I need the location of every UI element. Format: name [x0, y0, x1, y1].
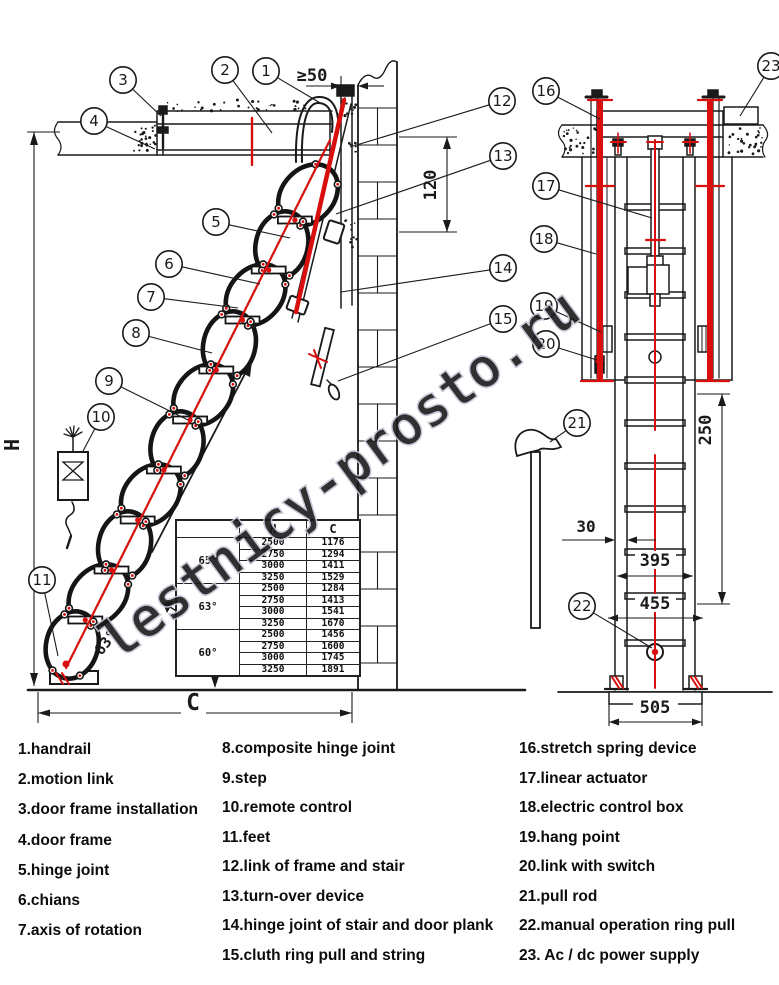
speckle-dot [737, 138, 739, 140]
bolt-dot [168, 413, 171, 416]
speckle-dot [210, 109, 213, 112]
speckle-dot [742, 142, 745, 145]
speckle-dot [167, 102, 169, 104]
callout-number: 2 [220, 61, 230, 79]
table-cell: 3250 [240, 664, 307, 676]
speckle-dot [353, 109, 355, 111]
speckle-dot [165, 106, 167, 108]
speckle-dot [303, 104, 305, 106]
table-cell: 1413 [307, 595, 361, 607]
speckle-dot [573, 127, 574, 128]
speckle-dot [354, 151, 356, 153]
bolt-dot [336, 183, 339, 186]
speckle-dot [343, 114, 346, 117]
speckle-dot [729, 136, 732, 139]
ladder-diagram-canvas: ≥50 120 H C ~63° 250 30 395 455 505 1234… [0, 0, 779, 738]
speckle-dot [138, 149, 140, 151]
speckle-dot [353, 106, 356, 109]
speckle-dot [257, 108, 260, 111]
table-row: 65°25001176 [176, 538, 360, 550]
table-row: 60°25001456 [176, 630, 360, 642]
speckle-dot [350, 238, 352, 240]
callout-8: 8 [123, 320, 212, 353]
speckle-dot [566, 132, 568, 134]
leader-line [341, 270, 490, 292]
legend-item: 23. Ac / dc power supply [519, 947, 735, 977]
speckle-dot [739, 127, 742, 130]
callout-number: 11 [32, 571, 51, 589]
callout-23: 23 [740, 53, 779, 116]
speckle-dot [755, 143, 758, 146]
legend-item: 1.handrail [18, 741, 198, 771]
callout-number: 10 [91, 408, 110, 426]
speckle-dot [760, 142, 762, 144]
speckle-dot [746, 133, 749, 136]
callout-number: 4 [89, 112, 99, 130]
legend-item: 4.door frame [18, 832, 198, 862]
speckle-dot [587, 136, 590, 139]
bolt-dot [157, 463, 160, 466]
speckle-dot [568, 129, 570, 131]
bolt-dot [247, 324, 250, 327]
bolt-dot [105, 563, 108, 566]
speckle-dot [248, 107, 250, 109]
bolt-dot [92, 620, 95, 623]
speckle-dot [139, 134, 141, 136]
bolt-dot [144, 520, 147, 523]
bolt-dot [79, 674, 82, 677]
bolt-dot [120, 507, 123, 510]
speckle-dot [349, 144, 351, 146]
speckle-dot [298, 107, 300, 109]
table-cell: 1176 [307, 538, 361, 550]
legend-item: 18.electric control box [519, 799, 735, 829]
bolt-dot [232, 383, 235, 386]
speckle-dot [576, 131, 579, 134]
callout-15: 15 [338, 306, 516, 381]
table-cell: 1411 [307, 561, 361, 573]
speckle-dot [153, 141, 156, 144]
table-cell: 1891 [307, 664, 361, 676]
speckle-dot [293, 100, 296, 103]
speckle-dot [569, 147, 571, 149]
speckle-dot [294, 105, 296, 107]
pull-ring [327, 383, 342, 401]
bolt-dot [197, 420, 200, 423]
bolt-dot [277, 207, 280, 210]
legend-item: 10.remote control [222, 799, 493, 829]
legend-item: 22.manual operation ring pull [519, 917, 735, 947]
leader-line [556, 312, 601, 333]
dim-base-label: 505 [640, 698, 671, 718]
callout-17: 17 [533, 173, 652, 218]
bolt-dot [183, 474, 186, 477]
legend-item: 15.cluth ring pull and string [222, 947, 493, 977]
dim-spring-label: 250 [696, 415, 716, 446]
joint-dot [188, 417, 193, 422]
speckle-dot [563, 135, 565, 137]
dim-width-label: C [186, 690, 200, 716]
speckle-dot [579, 142, 581, 144]
speckle-dot [134, 131, 136, 133]
legend-item: 7.axis of rotation [18, 922, 198, 952]
speckle-dot [349, 241, 352, 244]
joint-dot [135, 517, 140, 522]
callout-number: 9 [104, 372, 114, 390]
callout-12: 12 [350, 88, 515, 147]
table-cell: 1284 [307, 584, 361, 596]
speckle-dot [741, 138, 743, 140]
legend-col2: 8.composite hinge joint9.step10.remote c… [222, 740, 493, 976]
speckle-dot [181, 109, 183, 111]
callout-10: 10 [82, 404, 114, 453]
speckle-dot [569, 148, 572, 151]
speckle-dot [194, 106, 196, 108]
legend-item: 20.link with switch [519, 858, 735, 888]
table-cell: 1294 [307, 549, 361, 561]
callout-number: 15 [493, 310, 512, 328]
table-cell: 3000 [240, 561, 307, 573]
stretch-spring-right [707, 100, 713, 382]
table-cell: 1456 [307, 630, 361, 642]
speckle-dot [350, 224, 352, 226]
table-cell: 3000 [240, 607, 307, 619]
table-header [176, 520, 240, 538]
bolt-dot [208, 369, 211, 372]
speckle-dot [354, 142, 357, 145]
legend-item: 8.composite hinge joint [222, 740, 493, 770]
speckle-dot [576, 145, 579, 148]
callout-number: 12 [492, 92, 511, 110]
speckle-dot [757, 149, 760, 152]
dimensions [27, 76, 730, 726]
speckle-dot [146, 149, 149, 152]
dim-inner-label: 395 [640, 551, 671, 571]
bolt-dot [220, 313, 223, 316]
legend-item: 9.step [222, 770, 493, 800]
bolt-dot [288, 274, 291, 277]
callout-number: 13 [493, 147, 512, 165]
callout-3: 3 [110, 67, 161, 116]
linear-actuator [628, 136, 669, 306]
speckle-dot [755, 136, 758, 139]
speckle-dot [145, 128, 147, 130]
callout-number: 17 [536, 177, 555, 195]
speckle-dot [757, 130, 759, 132]
speckle-dot [569, 139, 572, 142]
legend-item: 16.stretch spring device [519, 740, 735, 770]
table-cell: 3000 [240, 653, 307, 665]
speckle-dot [575, 138, 577, 140]
speckle-dot [567, 152, 569, 154]
speckle-dot [197, 101, 199, 103]
callout-number: 21 [567, 414, 586, 432]
power-supply-box [724, 107, 758, 124]
joint-dot [214, 367, 219, 372]
speckle-dot [748, 146, 750, 148]
angle-cell: 63° [176, 584, 240, 630]
callout-4: 4 [81, 108, 155, 149]
speckle-dot [154, 134, 157, 137]
speckle-dot [213, 103, 216, 106]
speckle-dot [138, 144, 140, 146]
red-parts [56, 100, 729, 688]
legend-col1: 1.handrail2.motion link3.door frame inst… [18, 741, 198, 952]
table-cell: 2500 [240, 630, 307, 642]
bolt-dot [261, 269, 264, 272]
joint-dot [266, 267, 271, 272]
bolt-dot [156, 469, 159, 472]
table-cell: 2500 [240, 538, 307, 550]
bolt-dot [302, 220, 305, 223]
speckle-dot [760, 146, 762, 148]
callout-number: 7 [146, 288, 156, 306]
table-header: C [307, 520, 361, 538]
callout-number: 23 [761, 57, 779, 75]
speckle-dot [177, 110, 179, 112]
speckle-dot [351, 106, 352, 107]
angle-cell: 65° [176, 538, 240, 584]
bolt-dot [284, 283, 287, 286]
speckle-dot [304, 107, 306, 109]
table-cell: 1600 [307, 641, 361, 653]
stretch-spring-left [597, 100, 603, 382]
speckle-dot [353, 236, 355, 238]
legend-item: 11.feet [222, 829, 493, 859]
speckle-dot [731, 133, 734, 136]
table-cell: 2750 [240, 641, 307, 653]
legend-item: 17.linear actuator [519, 770, 735, 800]
speckle-dot [150, 143, 152, 145]
callout-20: 20 [533, 331, 597, 360]
speckle-dot [351, 112, 353, 114]
dim-stile-label: 30 [576, 517, 595, 536]
speckle-dot [740, 140, 743, 143]
speckle-dot [141, 127, 143, 129]
bolt-dot [194, 424, 197, 427]
speckle-dot [145, 135, 147, 137]
speckle-dot [758, 132, 760, 134]
speckle-dot [257, 100, 259, 102]
callout-7: 7 [138, 284, 238, 310]
speckle-dot [566, 130, 567, 131]
callout-number: 20 [536, 335, 555, 353]
callout-number: 14 [493, 259, 512, 277]
table-cell: 1529 [307, 572, 361, 584]
speckle-dot [270, 105, 271, 106]
speckle-dot [148, 136, 151, 139]
table-cell: 1541 [307, 607, 361, 619]
leader-line [338, 324, 491, 381]
bolt-dot [179, 483, 182, 486]
table-cell: 1745 [307, 653, 361, 665]
bolt-dot [249, 320, 252, 323]
callout-number: 18 [534, 230, 553, 248]
legend-item: 21.pull rod [519, 888, 735, 918]
speckle-dot [753, 146, 756, 149]
dim-height-label: H [0, 439, 24, 451]
speckle-dot [133, 150, 135, 152]
joint-dot [83, 617, 88, 622]
speckle-dot [581, 146, 584, 149]
bolt-dot [63, 613, 66, 616]
leader-line [133, 89, 161, 116]
legend-item: 2.motion link [18, 771, 198, 801]
bolt-dot [142, 524, 145, 527]
speckle-dot [737, 150, 740, 153]
bolt-dot [299, 224, 302, 227]
speckle-dot [350, 108, 352, 110]
bolt-dot [104, 569, 107, 572]
bolt-dot [172, 407, 175, 410]
size-table: HC65°2500117627501294300014113250152963°… [175, 519, 361, 677]
callout-number: 22 [572, 597, 591, 615]
leader-line [336, 160, 491, 214]
speckle-dot [145, 137, 148, 140]
speckle-dot [752, 152, 755, 155]
table-cell: 2500 [240, 584, 307, 596]
bolt-dot [51, 669, 54, 672]
brick-pattern [358, 108, 397, 663]
speckle-dot [757, 134, 760, 137]
legend-col3: 16.stretch spring device17.linear actuat… [519, 740, 735, 976]
bolt-dot [131, 574, 134, 577]
bolt-dot [127, 583, 130, 586]
callout-number: 3 [118, 71, 128, 89]
bolt-dot [225, 307, 228, 310]
dim-outer-label: 455 [640, 594, 671, 614]
angle-cell: 60° [176, 630, 240, 677]
callout-number: 16 [536, 82, 555, 100]
antenna-burst [64, 426, 82, 437]
legend-item: 19.hang point [519, 829, 735, 859]
joint-dot [292, 217, 297, 222]
table-cell: 3250 [240, 572, 307, 584]
speckle-dot [236, 98, 239, 101]
speckle-dot [345, 102, 347, 104]
callout-14: 14 [341, 255, 516, 292]
speckle-dot [237, 105, 240, 108]
turn-over-device [311, 328, 341, 401]
speckle-dot [741, 150, 743, 152]
bolt-dot [314, 163, 317, 166]
speckle-dot [570, 145, 572, 147]
leader-line [350, 105, 489, 147]
callout-number: 6 [164, 255, 174, 273]
leader-line [550, 431, 566, 442]
speckle-dot [563, 131, 565, 133]
speckle-dot [201, 107, 204, 110]
table-cell: 2750 [240, 595, 307, 607]
frame-bolt [158, 106, 168, 148]
legend-item: 6.chians [18, 892, 198, 922]
speckle-dot [176, 104, 178, 106]
speckle-dot [354, 103, 357, 106]
bolt-dot [89, 624, 92, 627]
bolt-dot [116, 513, 119, 516]
speckle-dot [354, 222, 356, 224]
speckle-dot [142, 131, 145, 134]
speckle-dot [759, 127, 761, 129]
table-row: 63°25001284 [176, 584, 360, 596]
speckle-dot [351, 246, 354, 249]
speckle-dot [761, 137, 763, 139]
callout-number: 5 [211, 213, 221, 231]
speckle-dot [582, 153, 584, 155]
speckle-dot [273, 104, 276, 107]
speckle-dot [251, 100, 254, 103]
speckle-dot [223, 102, 225, 104]
leader-line [106, 127, 155, 150]
speckle-dot [266, 109, 267, 110]
table-cell: 2750 [240, 549, 307, 561]
speckle-dot [592, 148, 595, 151]
joint-dot [240, 317, 245, 322]
leader-line [557, 243, 596, 254]
speckle-dot [220, 109, 222, 111]
table-cell: 3250 [240, 618, 307, 630]
speckle-dot [729, 144, 730, 145]
speckle-dot [592, 151, 595, 154]
speckle-dot [350, 228, 352, 230]
speckle-dot [293, 108, 296, 111]
joint-dot [109, 567, 114, 572]
speckle-dot [583, 142, 585, 144]
speckle-dot [140, 144, 143, 147]
legend-item: 3.door frame installation [18, 801, 198, 831]
speckle-dot [151, 126, 153, 128]
speckle-dot [152, 130, 154, 132]
legend-item: 13.turn-over device [222, 888, 493, 918]
callout-number: 1 [261, 62, 271, 80]
bolt-dot [262, 263, 265, 266]
callout-21: 21 [550, 410, 590, 442]
leader-line [82, 429, 95, 453]
speckle-dot [296, 101, 299, 104]
pull-rod [515, 430, 561, 628]
table-cell: 1670 [307, 618, 361, 630]
speckle-dot [346, 112, 349, 115]
bolt-dot [68, 607, 71, 610]
speckle-dot [346, 219, 348, 221]
speckle-dot [576, 130, 578, 132]
bolt-dot [273, 213, 276, 216]
dim-gap-label: ≥50 [297, 66, 328, 86]
speckle-dot [172, 107, 175, 110]
callout-18: 18 [531, 226, 596, 254]
speckle-dot [140, 138, 143, 141]
bolt-dot [209, 363, 212, 366]
joint-dot [161, 467, 166, 472]
legend-item: 5.hinge joint [18, 862, 198, 892]
remote-control [58, 426, 88, 548]
attic-ladder-technical-drawing: ≥50 120 H C ~63° 250 30 395 455 505 1234… [0, 0, 779, 985]
speckle-dot [728, 151, 731, 154]
callout-number: 8 [131, 324, 141, 342]
speckle-dot [154, 125, 156, 127]
legend-item: 14.hinge joint of stair and door plank [222, 917, 493, 947]
legend-item: 12.link of frame and stair [222, 858, 493, 888]
table-header: H [240, 520, 307, 538]
bolt-dot [236, 374, 239, 377]
speckle-dot [355, 238, 357, 240]
callout-number: 19 [534, 297, 553, 315]
dim-offset-label: 120 [421, 170, 441, 201]
speckle-dot [271, 104, 273, 106]
